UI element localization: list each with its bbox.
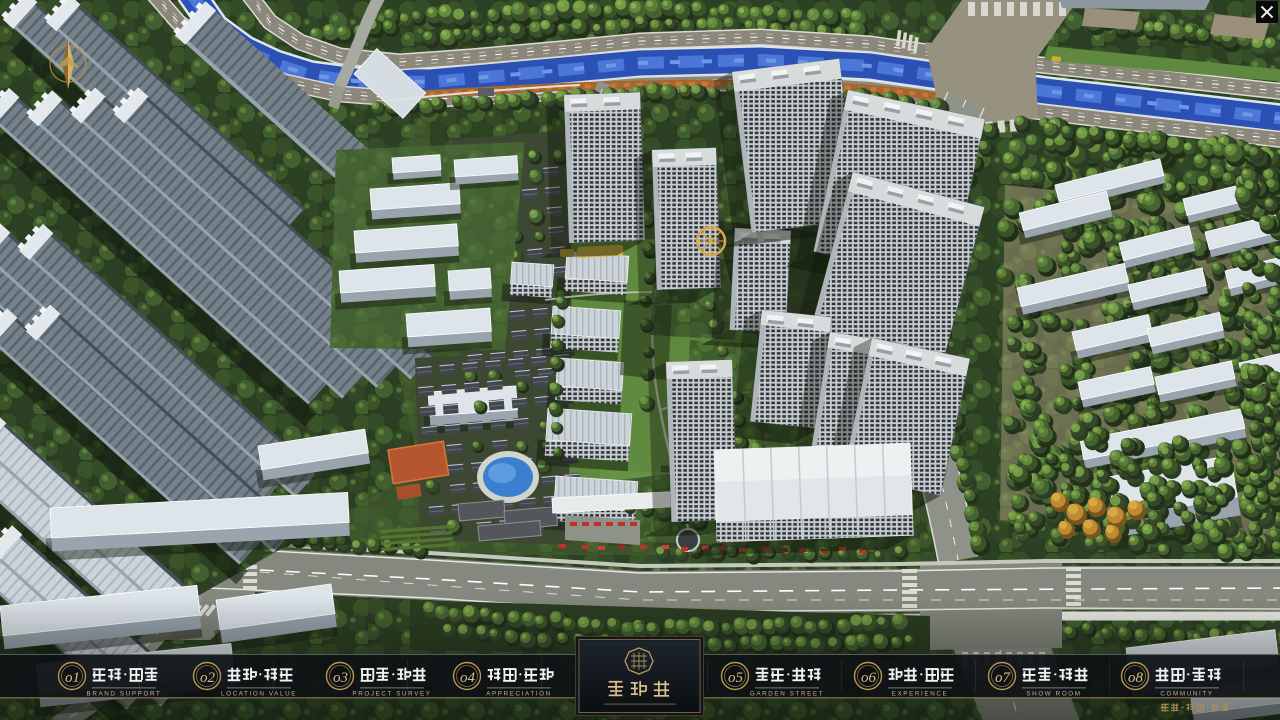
svg-text:o1: o1 — [65, 670, 80, 686]
svg-text:BRAND SUPPORT: BRAND SUPPORT — [87, 691, 162, 698]
svg-text:o3: o3 — [333, 670, 348, 686]
svg-text:o4: o4 — [460, 670, 476, 686]
svg-text:PROJECT SURVEY: PROJECT SURVEY — [352, 691, 431, 698]
svg-text:o2: o2 — [200, 670, 216, 686]
svg-text:LOCATION VALUE: LOCATION VALUE — [221, 691, 297, 698]
